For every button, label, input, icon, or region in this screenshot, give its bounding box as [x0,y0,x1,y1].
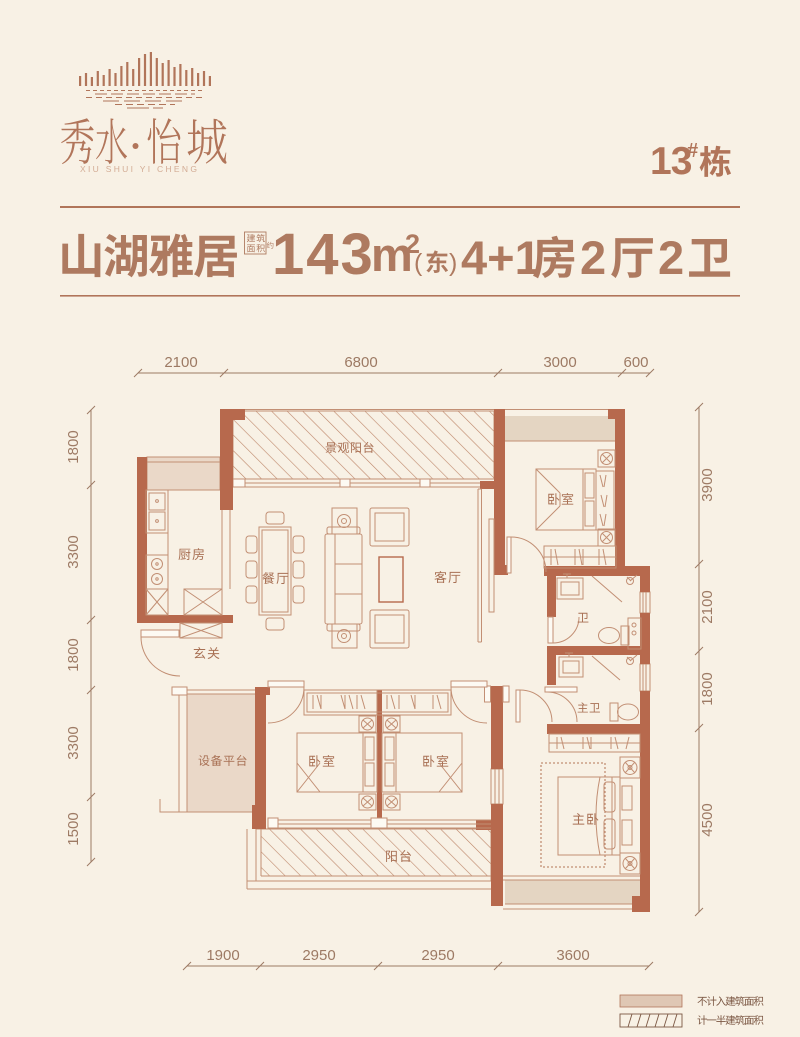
svg-text:143: 143 [272,222,375,287]
svg-text:2: 2 [658,231,684,284]
svg-text:13: 13 [650,140,692,183]
svg-text:1800: 1800 [65,430,82,463]
svg-text:XIU SHUI YI CHENG: XIU SHUI YI CHENG [80,164,199,174]
svg-text:3300: 3300 [65,726,82,759]
svg-text:4+1: 4+1 [461,231,541,284]
svg-text:): ) [449,249,457,277]
svg-text:2100: 2100 [164,354,197,371]
svg-text:600: 600 [623,354,648,371]
svg-text:3000: 3000 [543,354,576,371]
svg-text:1800: 1800 [699,672,716,705]
svg-text:3900: 3900 [699,468,716,501]
svg-text:1900: 1900 [206,947,239,964]
svg-text:3300: 3300 [65,535,82,568]
svg-text:1800: 1800 [65,638,82,671]
svg-text:4500: 4500 [699,803,716,836]
svg-text:2950: 2950 [302,947,335,964]
svg-text:1500: 1500 [65,812,82,845]
svg-text:2950: 2950 [421,947,454,964]
svg-text:2100: 2100 [699,590,716,623]
svg-text:2: 2 [580,231,606,284]
svg-text:6800: 6800 [344,354,377,371]
svg-text:(: ( [414,249,423,277]
svg-text:#: # [687,140,698,162]
svg-text:3600: 3600 [556,947,589,964]
